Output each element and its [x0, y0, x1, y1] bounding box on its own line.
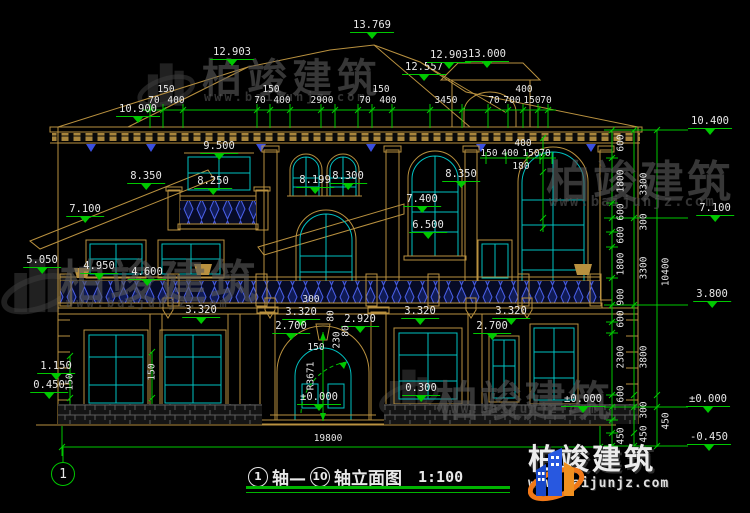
- dormer-roof: [441, 63, 540, 80]
- title-underline-thick: [246, 486, 510, 489]
- watermark-url: www.baijunjz.com: [204, 90, 368, 104]
- watermark-brand: 柏竣建筑: [436, 368, 612, 429]
- eave-corbels: [86, 144, 596, 152]
- title-underline-thin: [246, 492, 510, 493]
- entrance-pilaster: [260, 312, 275, 420]
- eave-fascia: [50, 127, 642, 132]
- watermark-url: www.baijunjz.com: [549, 194, 716, 210]
- brand-logo-icon: [528, 444, 590, 508]
- cad-elevation-screenshot: 柏竣建筑 www.baijunjz.com 柏竣建筑 www.baijunjz.…: [0, 0, 750, 513]
- stone-base: [58, 404, 262, 424]
- axis-bubble-1: 1: [51, 462, 75, 486]
- balcony-balustrade: [180, 201, 256, 224]
- axis-number: 1: [59, 467, 67, 482]
- title-axis-start: 1: [248, 467, 268, 487]
- center-pent-roof: [258, 204, 404, 255]
- watermark-url: www.baijunjz.com: [441, 402, 598, 417]
- dentil-band: [52, 133, 640, 141]
- brand-logo: 柏竣建筑 www.baijunjz.com: [528, 444, 669, 491]
- title-scale: 1:100: [418, 468, 463, 486]
- title-axis-end: 10: [310, 467, 330, 487]
- watermark-url: www.baijunjz.com: [66, 296, 230, 310]
